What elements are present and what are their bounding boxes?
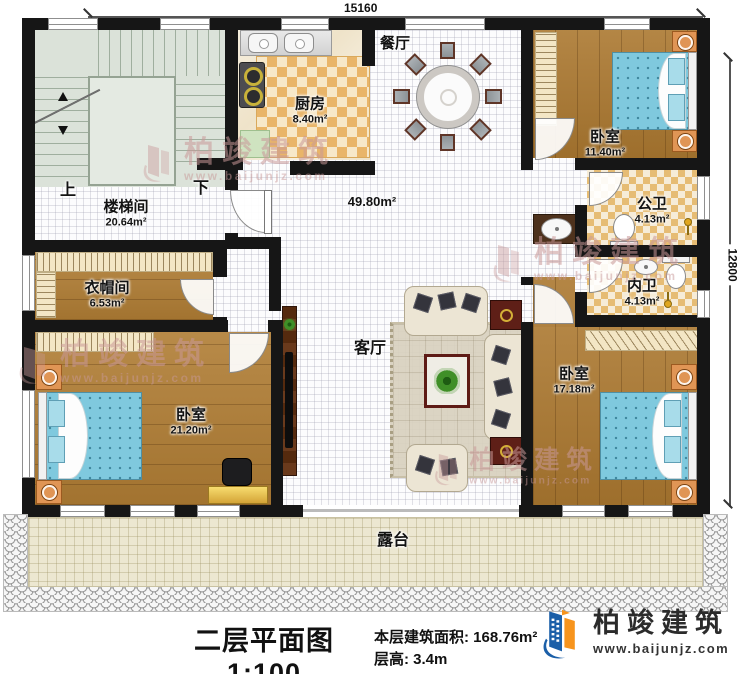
nightstand xyxy=(672,130,697,152)
wall xyxy=(575,158,698,170)
tv-icon xyxy=(285,352,293,448)
window xyxy=(60,505,105,517)
dining-table xyxy=(417,66,479,128)
floor-drain-icon xyxy=(687,226,689,235)
desk xyxy=(208,486,268,504)
wall xyxy=(22,240,227,252)
room-label-cloakroom: 衣帽间 6.53m² xyxy=(84,281,129,310)
nightstand xyxy=(36,480,62,504)
right-dimension-label: 12800 xyxy=(726,244,740,285)
kitchen-sink xyxy=(248,33,278,53)
window xyxy=(697,176,710,220)
brand-logo-icon xyxy=(538,604,586,662)
floor-area-text: 本层建筑面积: 168.76m² xyxy=(374,626,537,647)
nightstand xyxy=(671,480,697,504)
floor-height-text: 层高: 3.4m xyxy=(374,648,447,669)
wall xyxy=(575,245,698,257)
wall xyxy=(521,322,533,505)
wall xyxy=(271,320,283,505)
room-label-living: 客厅 xyxy=(354,340,386,358)
desk-chair xyxy=(222,458,252,486)
stair-direction-arrow xyxy=(58,126,68,135)
dimension-tick xyxy=(723,499,733,509)
exterior-wall xyxy=(519,505,710,517)
window xyxy=(281,18,329,30)
stair-up-label: 上 xyxy=(60,182,76,200)
wardrobe-rail xyxy=(535,32,557,126)
room-label-dining: 餐厅 xyxy=(380,36,410,53)
window xyxy=(562,505,605,517)
wall xyxy=(213,240,227,277)
exterior-wall xyxy=(697,18,710,517)
floor-drain-icon xyxy=(684,218,692,226)
pillow xyxy=(48,400,65,427)
window xyxy=(604,18,650,30)
room-label-kitchen: 厨房 8.40m² xyxy=(293,97,328,126)
pillow xyxy=(664,436,681,463)
plant-icon xyxy=(434,368,460,394)
wardrobe-rail xyxy=(36,272,56,318)
side-table xyxy=(490,300,522,330)
wall xyxy=(197,158,243,170)
side-table xyxy=(490,437,522,465)
dining-chair xyxy=(393,89,410,104)
window xyxy=(22,255,35,311)
wall xyxy=(269,249,281,311)
window xyxy=(160,18,210,30)
wall xyxy=(521,30,533,170)
window xyxy=(197,505,240,517)
dining-chair xyxy=(440,134,455,151)
room-label-bedroom-left: 卧室 21.20m² xyxy=(171,408,212,437)
floor-drain-icon xyxy=(664,300,672,308)
kitchen-mat xyxy=(240,130,270,158)
door-leaf xyxy=(264,190,272,234)
pillow xyxy=(668,94,685,121)
stair-down-label: 下 xyxy=(193,180,209,198)
stair-treads xyxy=(88,30,225,76)
room-label-ensuite-bathroom: 内卫 4.13m² xyxy=(625,279,660,308)
window xyxy=(130,505,175,517)
dimension-tick xyxy=(723,52,733,62)
wardrobe-rail xyxy=(36,332,154,352)
top-dimension-label: 15160 xyxy=(340,1,381,15)
living-area-label: 49.80m² xyxy=(348,195,396,209)
window xyxy=(697,290,710,318)
plant-icon xyxy=(283,318,296,331)
wall xyxy=(227,237,281,249)
nightstand xyxy=(36,364,62,390)
room-label-bedroom-right: 卧室 17.18m² xyxy=(554,367,595,396)
armchair xyxy=(406,444,468,492)
bed-headboard xyxy=(38,392,47,480)
dining-chair xyxy=(485,89,502,104)
window xyxy=(22,390,35,478)
wall xyxy=(290,161,375,175)
drawing-title: 二层平面图1:100 xyxy=(158,619,370,674)
floor-plan: 15160 12800 xyxy=(0,0,750,674)
wardrobe-rail xyxy=(36,252,213,272)
washbasin-icon xyxy=(541,218,572,240)
brand-website: www.baijunjz.com xyxy=(593,641,729,656)
stove-burner-icon xyxy=(244,67,263,86)
nightstand xyxy=(672,31,697,52)
room-label-stair-hall: 楼梯间 20.64m² xyxy=(103,200,148,229)
wall xyxy=(362,30,375,66)
pillow xyxy=(664,400,681,427)
toilet-icon xyxy=(662,256,690,290)
window xyxy=(405,18,485,30)
brand-logo: 柏竣建筑 www.baijunjz.com xyxy=(538,604,729,662)
kitchen-sink xyxy=(284,33,314,53)
terrace-floor xyxy=(28,517,703,587)
wall xyxy=(521,277,533,285)
stove-burner-icon xyxy=(244,87,263,106)
window xyxy=(628,505,673,517)
wardrobe-rail xyxy=(585,330,698,351)
bed-headboard xyxy=(688,392,697,480)
room-label-public-bathroom: 公卫 4.13m² xyxy=(635,197,670,226)
stove-icon xyxy=(239,62,265,108)
wall xyxy=(22,320,228,332)
sofa xyxy=(404,286,488,336)
nightstand xyxy=(671,364,697,390)
washbasin-icon xyxy=(634,259,658,275)
room-label-terrace: 露台 xyxy=(377,532,409,550)
dining-chair xyxy=(440,42,455,59)
stair-direction-arrow xyxy=(58,92,68,101)
pillow xyxy=(668,58,685,85)
bed-headboard xyxy=(688,52,697,130)
wall xyxy=(575,315,698,327)
stair-landing xyxy=(88,76,176,186)
brand-name: 柏竣建筑 xyxy=(593,610,729,637)
terrace-threshold xyxy=(303,509,519,512)
window xyxy=(48,18,98,30)
room-label-bedroom-top-right: 卧室 11.40m² xyxy=(585,130,625,159)
floor-drain-icon xyxy=(667,292,669,300)
pillow xyxy=(48,436,65,463)
